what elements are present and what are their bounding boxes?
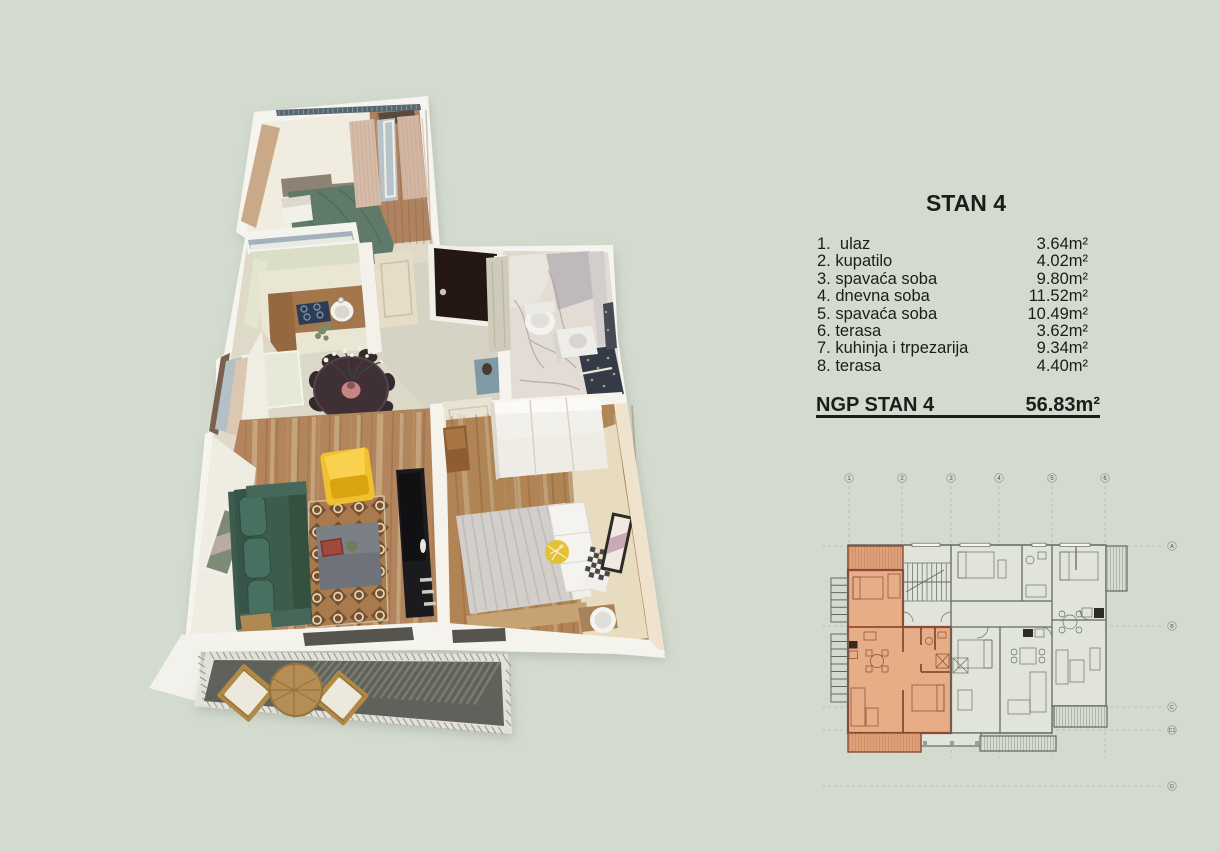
svg-text:C: C	[1170, 705, 1174, 711]
svg-text:1: 1	[847, 476, 851, 482]
svg-text:D: D	[1170, 784, 1174, 790]
svg-text:B: B	[1170, 624, 1174, 630]
svg-text:C1: C1	[1169, 728, 1176, 734]
svg-text:2: 2	[900, 476, 904, 482]
svg-text:6: 6	[1103, 476, 1107, 482]
svg-text:5: 5	[1050, 476, 1054, 482]
svg-text:A: A	[1170, 544, 1174, 550]
svg-text:4: 4	[997, 476, 1001, 482]
svg-text:3: 3	[949, 476, 953, 482]
